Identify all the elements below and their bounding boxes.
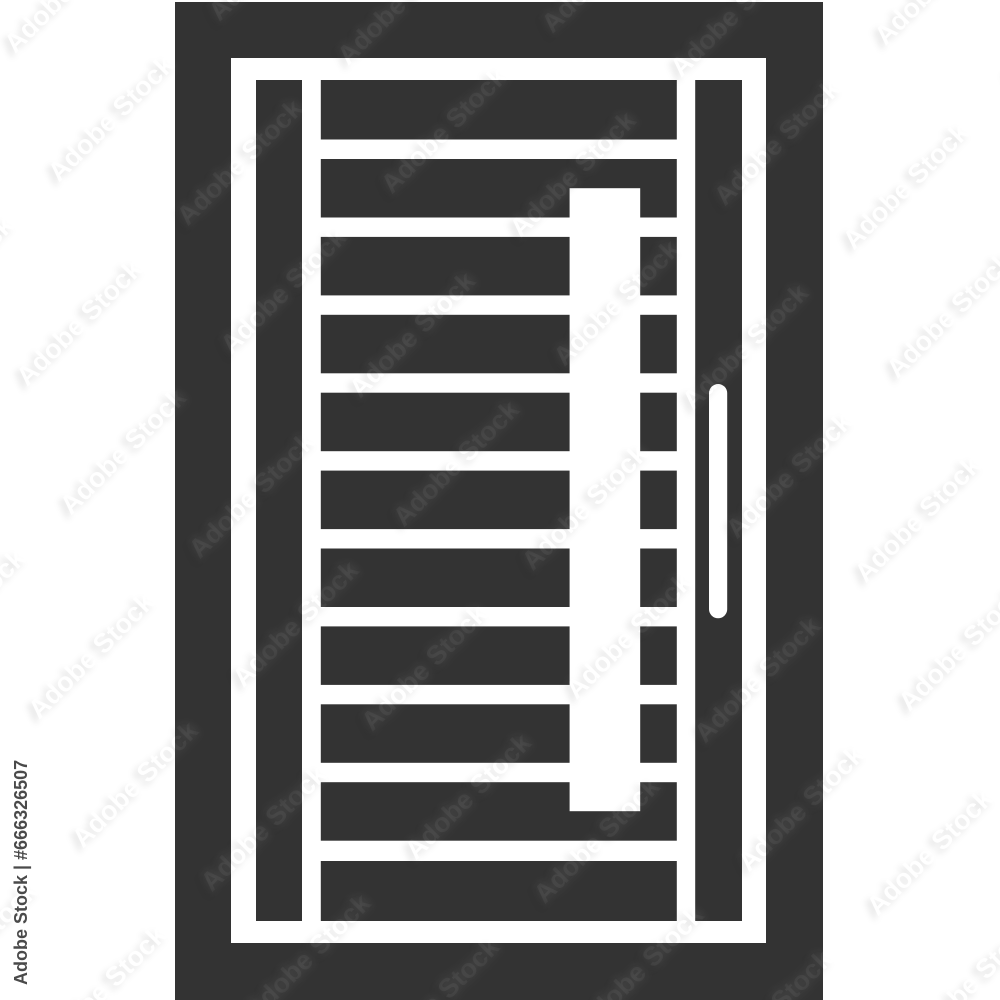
- svg-text:Adobe Stock | #666326507: Adobe Stock | #666326507: [11, 760, 31, 985]
